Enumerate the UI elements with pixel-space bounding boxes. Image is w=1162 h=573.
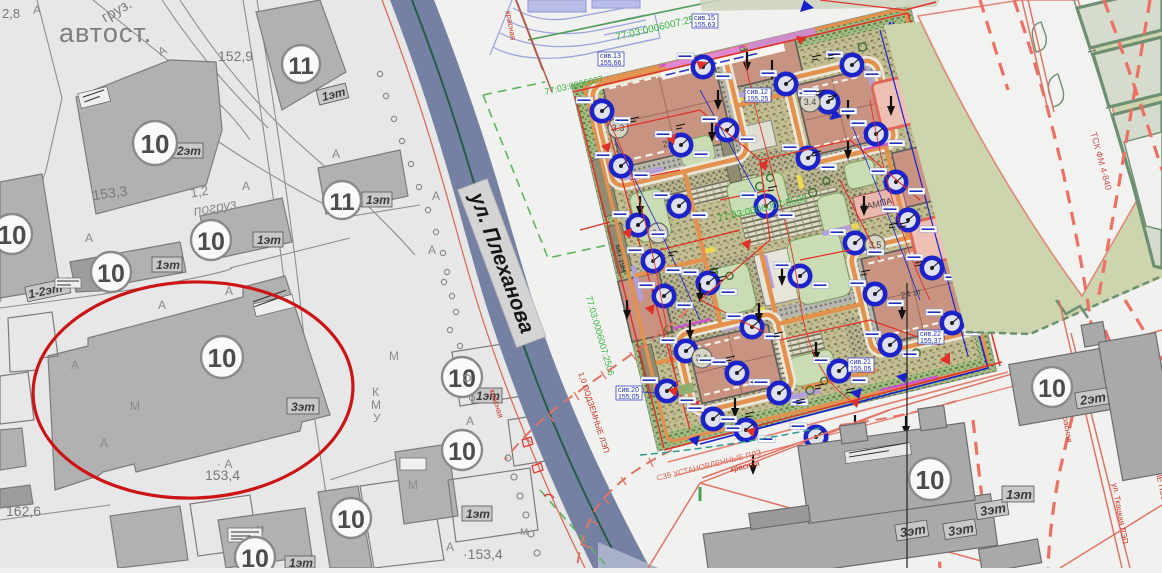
svg-text:М: М <box>130 399 140 413</box>
svg-text:2эт: 2эт <box>176 144 201 158</box>
svg-text:10: 10 <box>241 545 269 568</box>
svg-text:155,05: 155,05 <box>850 366 872 373</box>
svg-text:1эт: 1эт <box>366 193 390 207</box>
svg-text:А: А <box>466 414 474 428</box>
svg-text:10: 10 <box>916 465 945 495</box>
svg-text:сив.21: сив.21 <box>850 359 871 366</box>
svg-text:11: 11 <box>329 189 354 216</box>
svg-text:1эт: 1эт <box>466 507 490 521</box>
svg-text:А: А <box>225 284 233 298</box>
svg-text:155,25: 155,25 <box>747 96 769 103</box>
svg-text:А: А <box>158 298 166 312</box>
svg-text:1эт: 1эт <box>1006 487 1032 502</box>
svg-text:10: 10 <box>0 220 26 250</box>
svg-text:10: 10 <box>197 228 225 256</box>
svg-text:А: А <box>100 436 108 450</box>
svg-text:А: А <box>428 243 436 257</box>
svg-text:10: 10 <box>1038 375 1066 403</box>
svg-text:3.4: 3.4 <box>804 97 817 107</box>
svg-text:11: 11 <box>288 53 313 80</box>
svg-text:А: А <box>446 540 454 554</box>
svg-text:152,9: 152,9 <box>218 48 253 64</box>
svg-text:А: А <box>33 3 41 17</box>
svg-text:м: м <box>520 524 528 538</box>
svg-text:1,2: 1,2 <box>189 183 209 201</box>
svg-text:сив.12: сив.12 <box>747 89 768 96</box>
svg-text:А: А <box>85 231 93 245</box>
svg-text:10: 10 <box>448 365 476 393</box>
svg-text:М: М <box>371 398 381 412</box>
svg-text:10: 10 <box>141 129 170 159</box>
svg-text:10: 10 <box>208 343 237 373</box>
svg-text:1эт: 1эт <box>289 556 313 568</box>
svg-text:162,6: 162,6 <box>6 503 41 519</box>
svg-text:А: А <box>71 358 79 372</box>
svg-text:сив.15: сив.15 <box>694 15 715 22</box>
svg-text:А: А <box>242 179 250 193</box>
svg-text:сив.22: сив.22 <box>920 331 941 338</box>
svg-text:А: А <box>432 189 440 203</box>
svg-text:М: М <box>408 478 418 492</box>
svg-text:А: А <box>332 147 340 161</box>
svg-text:сив.13: сив.13 <box>600 53 621 60</box>
svg-text:сив.20: сив.20 <box>618 387 639 394</box>
svg-text:М: М <box>389 349 399 363</box>
svg-text:·153,4: ·153,4 <box>463 546 503 562</box>
svg-text:· А: · А <box>217 457 232 471</box>
svg-text:155,05: 155,05 <box>618 394 640 401</box>
svg-text:2,8: 2,8 <box>2 6 20 21</box>
svg-text:1эт: 1эт <box>257 233 281 247</box>
svg-text:10: 10 <box>337 506 365 534</box>
svg-text:10: 10 <box>97 260 125 288</box>
svg-text:155,37: 155,37 <box>920 338 942 345</box>
svg-text:3эт: 3эт <box>291 400 315 414</box>
svg-text:155,63: 155,63 <box>694 22 716 29</box>
svg-text:155,66: 155,66 <box>600 60 622 67</box>
svg-text:10: 10 <box>448 438 476 466</box>
svg-text:1эт: 1эт <box>156 258 180 272</box>
svg-text:К: К <box>372 385 379 399</box>
svg-text:У: У <box>373 411 381 425</box>
